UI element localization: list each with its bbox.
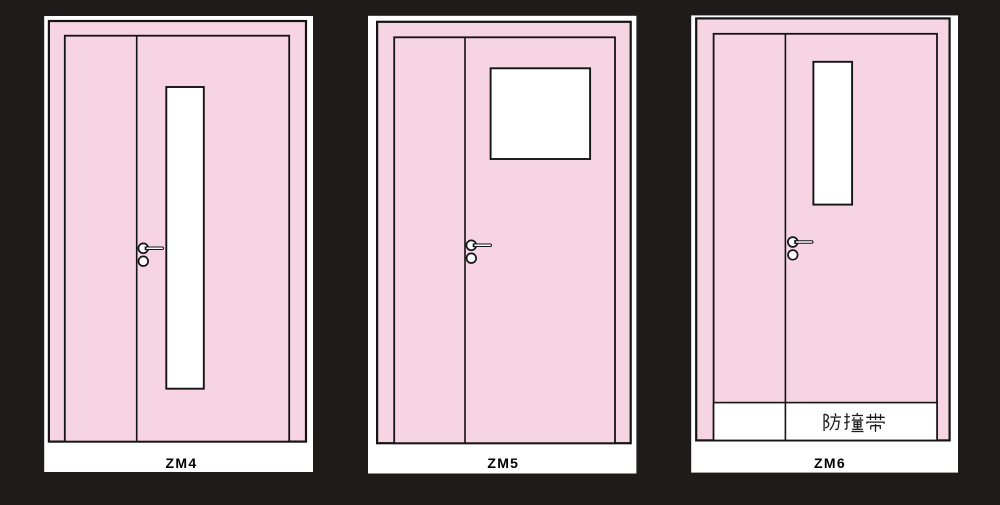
svg-text:ZM6: ZM6 [814, 455, 846, 471]
svg-text:ZM4: ZM4 [166, 455, 198, 471]
svg-text:ZM5: ZM5 [487, 455, 519, 471]
